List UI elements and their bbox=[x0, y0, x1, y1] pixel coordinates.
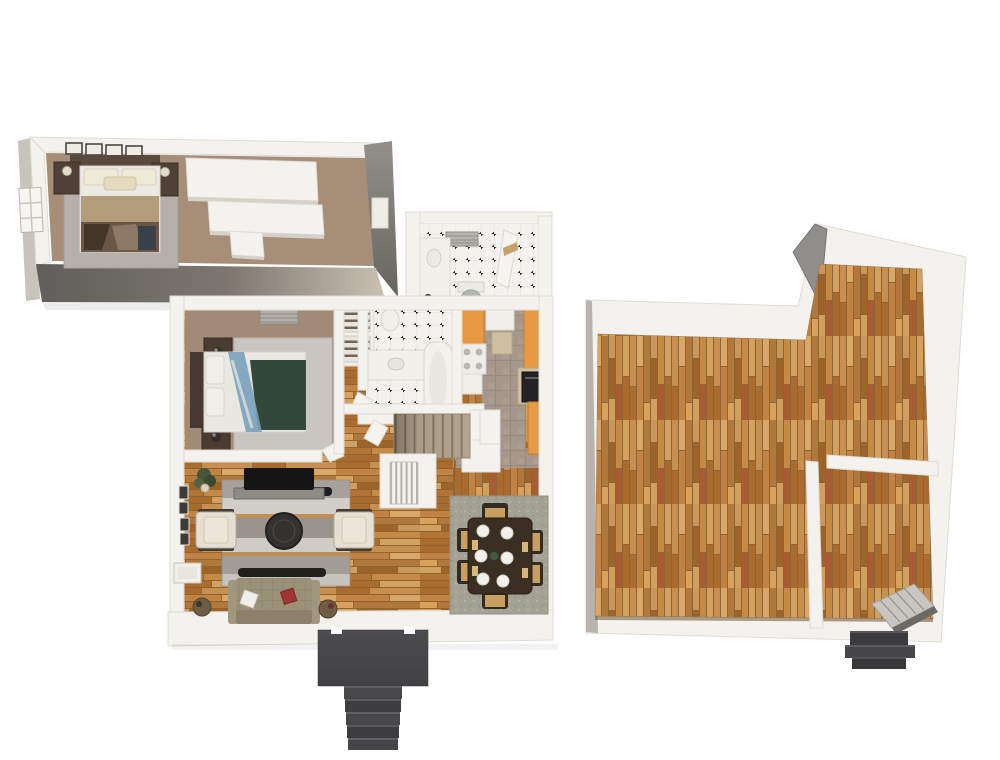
left-wall bbox=[406, 212, 420, 310]
porch-steps bbox=[344, 686, 402, 750]
side-table-left bbox=[193, 598, 211, 616]
armchair-right bbox=[334, 509, 374, 551]
ceiling-vent bbox=[446, 232, 478, 246]
wall-niche bbox=[372, 198, 388, 228]
armchair-left bbox=[196, 509, 236, 551]
exterior-stoop-steps bbox=[845, 631, 915, 669]
top-wall bbox=[406, 212, 552, 224]
half-wall-block-upper bbox=[480, 410, 500, 444]
window bbox=[19, 187, 43, 232]
porch-landing bbox=[318, 630, 428, 686]
double-bed bbox=[80, 166, 160, 252]
floor-plan-render bbox=[0, 0, 1000, 760]
top-wall bbox=[183, 296, 553, 310]
cabinet-left-upper bbox=[460, 306, 484, 344]
media-bench-bottom bbox=[238, 568, 326, 577]
entry-porch bbox=[318, 627, 428, 750]
upper-bedroom-wing bbox=[18, 137, 398, 311]
centerpiece bbox=[490, 552, 499, 561]
floor-plan-svg bbox=[0, 0, 1000, 760]
bedroom-right-wall bbox=[334, 296, 344, 454]
headboard bbox=[190, 352, 204, 428]
railing-unit bbox=[380, 454, 436, 508]
window-seat bbox=[174, 563, 201, 583]
upper-bathroom bbox=[406, 212, 552, 310]
range-stove bbox=[460, 344, 486, 374]
flat-screen-tv bbox=[244, 468, 314, 490]
bedroom-bottom-wall bbox=[183, 450, 322, 462]
vanity bbox=[366, 350, 428, 380]
nightstand-left bbox=[54, 162, 80, 194]
dining-room bbox=[450, 496, 548, 614]
basement bbox=[586, 224, 966, 669]
double-bed bbox=[204, 352, 306, 432]
counter-left bbox=[460, 374, 482, 394]
vanity bbox=[420, 238, 450, 302]
sofa bbox=[228, 578, 320, 624]
coffee-table bbox=[266, 513, 302, 549]
stair-top-wall bbox=[344, 404, 484, 414]
side-table-right bbox=[319, 600, 337, 618]
